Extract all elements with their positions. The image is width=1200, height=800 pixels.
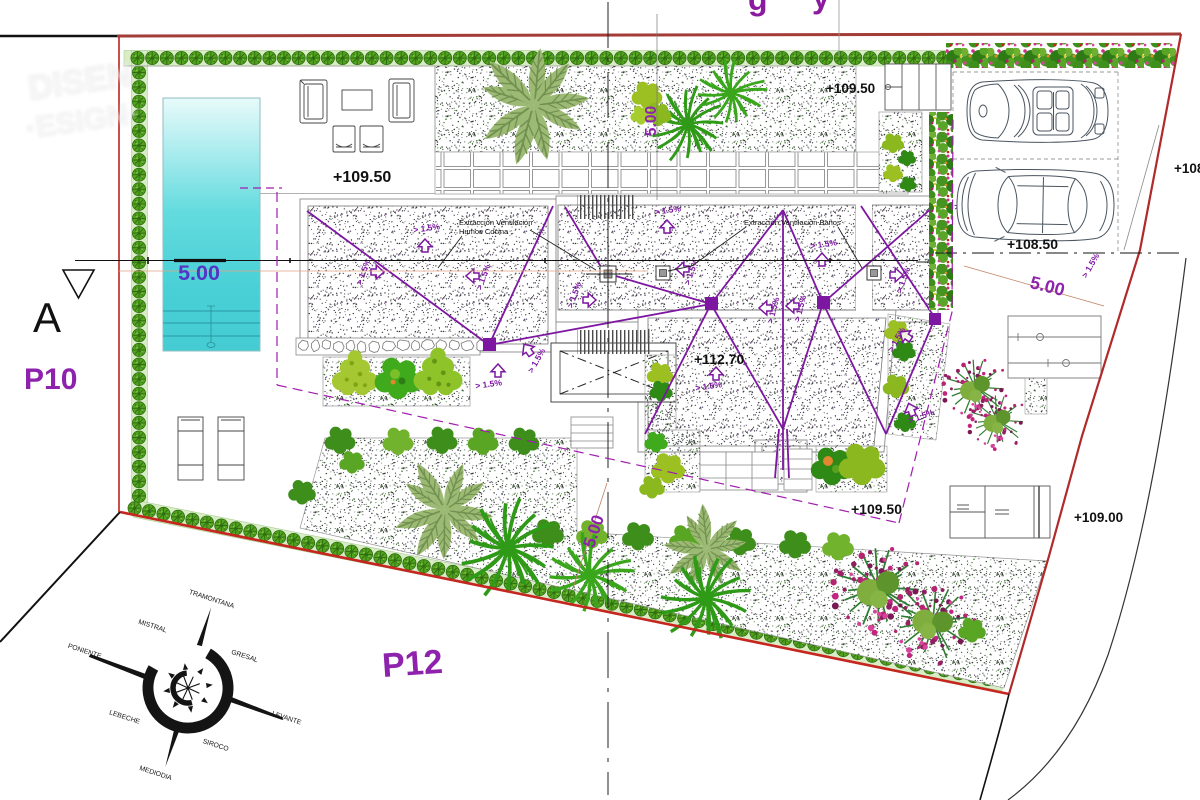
svg-text:A: A — [33, 294, 61, 341]
svg-text:5.00: 5.00 — [643, 106, 660, 136]
svg-text:5.00: 5.00 — [178, 261, 220, 285]
svg-text:Extracción Ventilación: Extracción Ventilación — [459, 218, 532, 227]
svg-text:Extracción Ventilación Baños: Extracción Ventilación Baños — [744, 218, 841, 227]
svg-text:+108.50: +108.50 — [1174, 161, 1200, 176]
svg-text:g: g — [748, 0, 768, 17]
svg-text:+109.00: +109.00 — [1074, 510, 1123, 525]
svg-text:+109.50: +109.50 — [826, 81, 875, 96]
svg-text:+112.70: +112.70 — [694, 351, 744, 367]
svg-text:y: y — [812, 0, 830, 15]
svg-text:+108.50: +108.50 — [1007, 236, 1058, 252]
svg-text:P10: P10 — [24, 363, 77, 396]
svg-text:+109.50: +109.50 — [333, 169, 391, 186]
svg-text:P12: P12 — [381, 643, 444, 685]
svg-text:Humos Cocina: Humos Cocina — [459, 227, 509, 236]
